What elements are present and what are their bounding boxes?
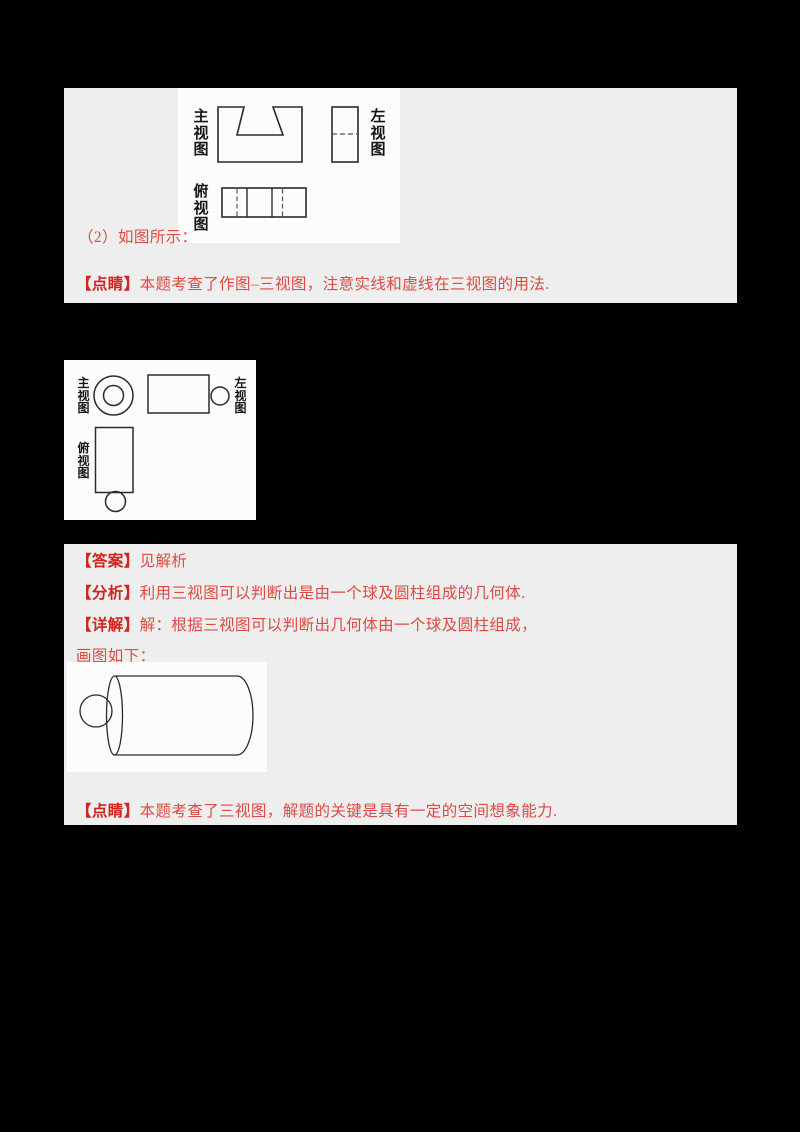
answer-label: 【答案】 xyxy=(76,553,140,570)
detail-label: 【详解】 xyxy=(76,617,140,634)
front-view-inner-circle xyxy=(104,386,124,406)
cylinder-end-ellipse xyxy=(107,676,123,755)
analysis-text: 利用三视图可以判断出是由一个球及圆柱组成的几何体. xyxy=(140,585,526,602)
front-view-outer-circle xyxy=(94,376,133,415)
cylinder-sphere-drawing xyxy=(67,662,267,772)
top-view-shape xyxy=(222,188,306,217)
question-diagram-image: 主视图 左视图 俯视图 xyxy=(64,360,256,520)
solid-figure-image xyxy=(67,662,267,772)
sub-question-caption: （2）如图所示： xyxy=(78,229,197,246)
left-view-circle xyxy=(211,387,229,405)
key-point-label-1: 【点睛】 xyxy=(76,276,140,293)
key-point-text-2: 本题考查了三视图，解题的关键是具有一定的空间想象能力. xyxy=(140,803,558,820)
key-point-note-1: 【点睛】本题考查了作图–三视图，注意实线和虚线在三视图的用法. xyxy=(76,276,550,293)
answer-line: 【答案】见解析 xyxy=(76,553,187,570)
top-view-label: 俯视图 xyxy=(193,184,209,234)
top-view-rectangle xyxy=(96,428,134,493)
key-point-text-1: 本题考查了作图–三视图，注意实线和虚线在三视图的用法. xyxy=(140,276,550,293)
answer-section-1: 主视图 左视图 俯视图 （2）如图所示： 【点睛】本题考查了作图–三视图，注意实… xyxy=(64,88,737,303)
front-view-shape xyxy=(218,107,302,162)
answer-text: 见解析 xyxy=(140,553,188,570)
three-view-diagram-drawing xyxy=(178,88,400,243)
cylinder-body xyxy=(115,676,254,755)
left-view-label-2: 左视图 xyxy=(234,377,247,415)
left-view-rectangle xyxy=(148,375,209,413)
key-point-label-2: 【点睛】 xyxy=(76,803,140,820)
analysis-label: 【分析】 xyxy=(76,585,140,602)
analysis-line: 【分析】利用三视图可以判断出是由一个球及圆柱组成的几何体. xyxy=(76,585,526,602)
left-view-label: 左视图 xyxy=(370,109,386,159)
detail-line: 【详解】解：根据三视图可以判断出几何体由一个球及圆柱组成， xyxy=(76,617,537,634)
front-view-label-2: 主视图 xyxy=(77,377,90,415)
answer-section-2: 【答案】见解析 【分析】利用三视图可以判断出是由一个球及圆柱组成的几何体. 【详… xyxy=(64,544,737,825)
front-view-label: 主视图 xyxy=(193,109,209,159)
key-point-note-2: 【点睛】本题考查了三视图，解题的关键是具有一定的空间想象能力. xyxy=(76,803,557,820)
three-view-diagram-image: 主视图 左视图 俯视图 xyxy=(178,88,400,243)
detail-text: 解：根据三视图可以判断出几何体由一个球及圆柱组成， xyxy=(140,617,538,634)
top-view-circle xyxy=(106,492,126,512)
document-page: { "colors": { "background": "#000000", "… xyxy=(0,0,800,1132)
top-view-label-2: 俯视图 xyxy=(77,442,90,480)
sphere-cylinder-three-view-drawing xyxy=(64,360,256,520)
